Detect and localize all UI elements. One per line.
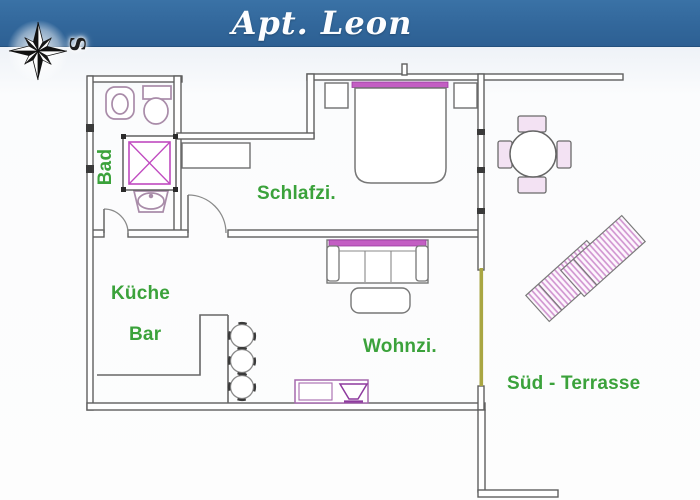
shower [121, 134, 178, 192]
room-label-terrasse: Süd - Terrasse [507, 373, 640, 395]
room-label-wohnzimmer: Wohnzi. [363, 336, 437, 358]
floor-plan [0, 0, 700, 500]
room-label-kueche: Küche [111, 283, 170, 305]
bed [352, 82, 448, 183]
sofa [327, 240, 428, 283]
tv-board [295, 380, 368, 403]
bar-stools [229, 323, 255, 400]
wardrobe [182, 143, 250, 168]
dining-table [510, 131, 556, 177]
floorplan-page: Apt. Leon S [0, 0, 700, 500]
coffee-table [351, 288, 410, 313]
terrace-door [480, 268, 484, 386]
room-label-bar: Bar [129, 324, 161, 346]
kitchen-counter [97, 315, 228, 403]
room-label-bad: Bad [95, 146, 117, 188]
room-label-schlafzimmer: Schlafzi. [257, 183, 336, 205]
